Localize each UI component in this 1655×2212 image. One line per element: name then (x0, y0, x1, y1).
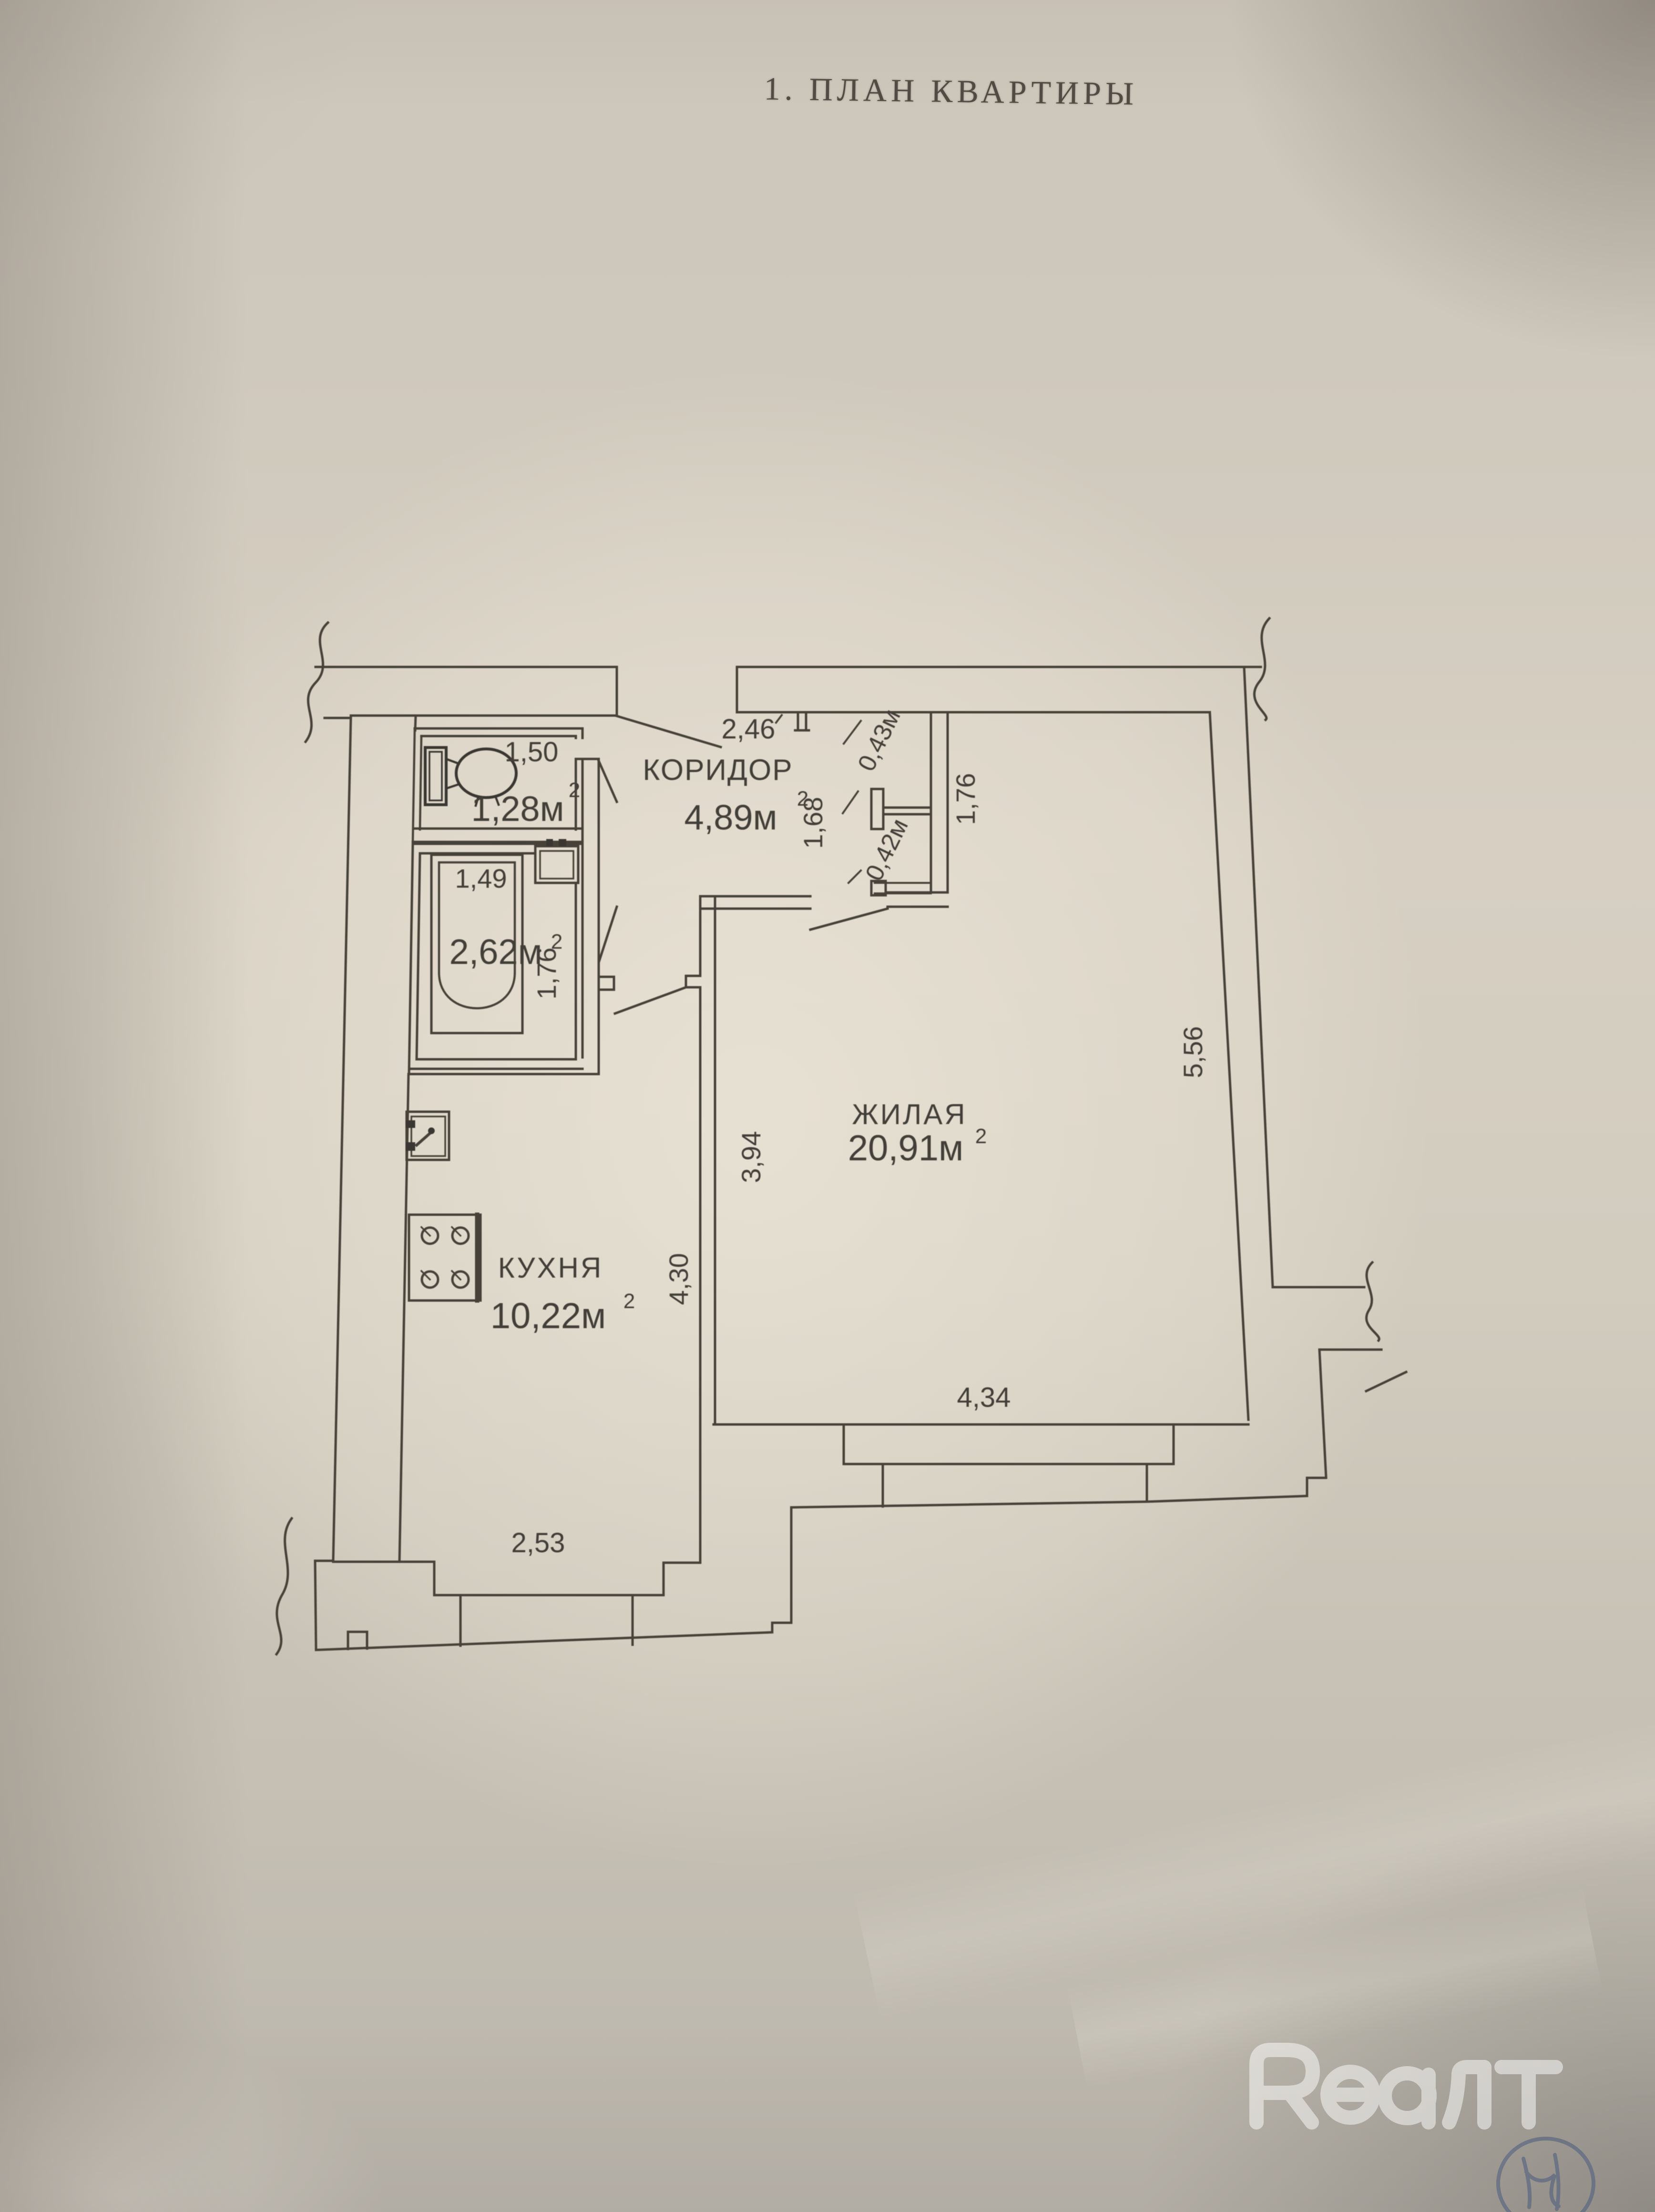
svg-text:20,91м: 20,91м (848, 1128, 963, 1168)
svg-text:КОРИДОР: КОРИДОР (643, 754, 793, 787)
svg-text:0,43м: 0,43м (853, 705, 906, 776)
svg-text:1,76: 1,76 (950, 773, 981, 825)
svg-text:4,34: 4,34 (957, 1382, 1011, 1413)
svg-text:1,49: 1,49 (455, 863, 507, 893)
svg-text:10,22м: 10,22м (490, 1296, 606, 1336)
svg-text:5,56: 5,56 (1178, 1026, 1208, 1078)
svg-text:0,42м: 0,42м (860, 814, 914, 885)
svg-text:1,50: 1,50 (505, 737, 559, 768)
svg-text:1,28м: 1,28м (471, 789, 564, 829)
svg-text:2: 2 (797, 787, 808, 810)
svg-text:КУХНЯ: КУХНЯ (498, 1252, 603, 1284)
svg-text:1,68: 1,68 (798, 797, 828, 849)
svg-text:2: 2 (975, 1125, 987, 1148)
svg-text:2: 2 (623, 1290, 635, 1313)
svg-text:3,94: 3,94 (736, 1131, 766, 1183)
svg-text:ЖИЛАЯ: ЖИЛАЯ (852, 1098, 967, 1130)
svg-text:1,76: 1,76 (531, 948, 562, 1000)
svg-text:2,46: 2,46 (722, 714, 776, 745)
svg-text:4,30: 4,30 (664, 1253, 694, 1305)
svg-text:2: 2 (569, 778, 580, 802)
svg-text:2,53: 2,53 (511, 1527, 565, 1558)
svg-text:4,89м: 4,89м (684, 798, 777, 837)
svg-text:2,62м: 2,62м (450, 932, 542, 972)
svg-text:2: 2 (551, 930, 562, 953)
